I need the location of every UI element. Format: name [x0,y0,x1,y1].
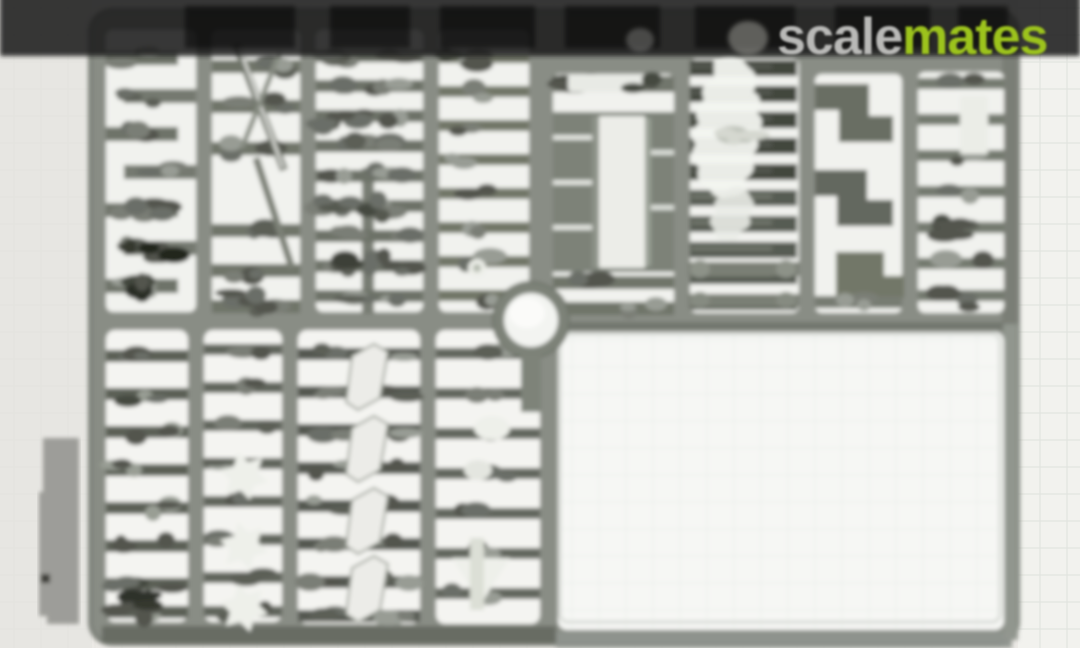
svg-text:scalemates: scalemates [777,8,1047,66]
